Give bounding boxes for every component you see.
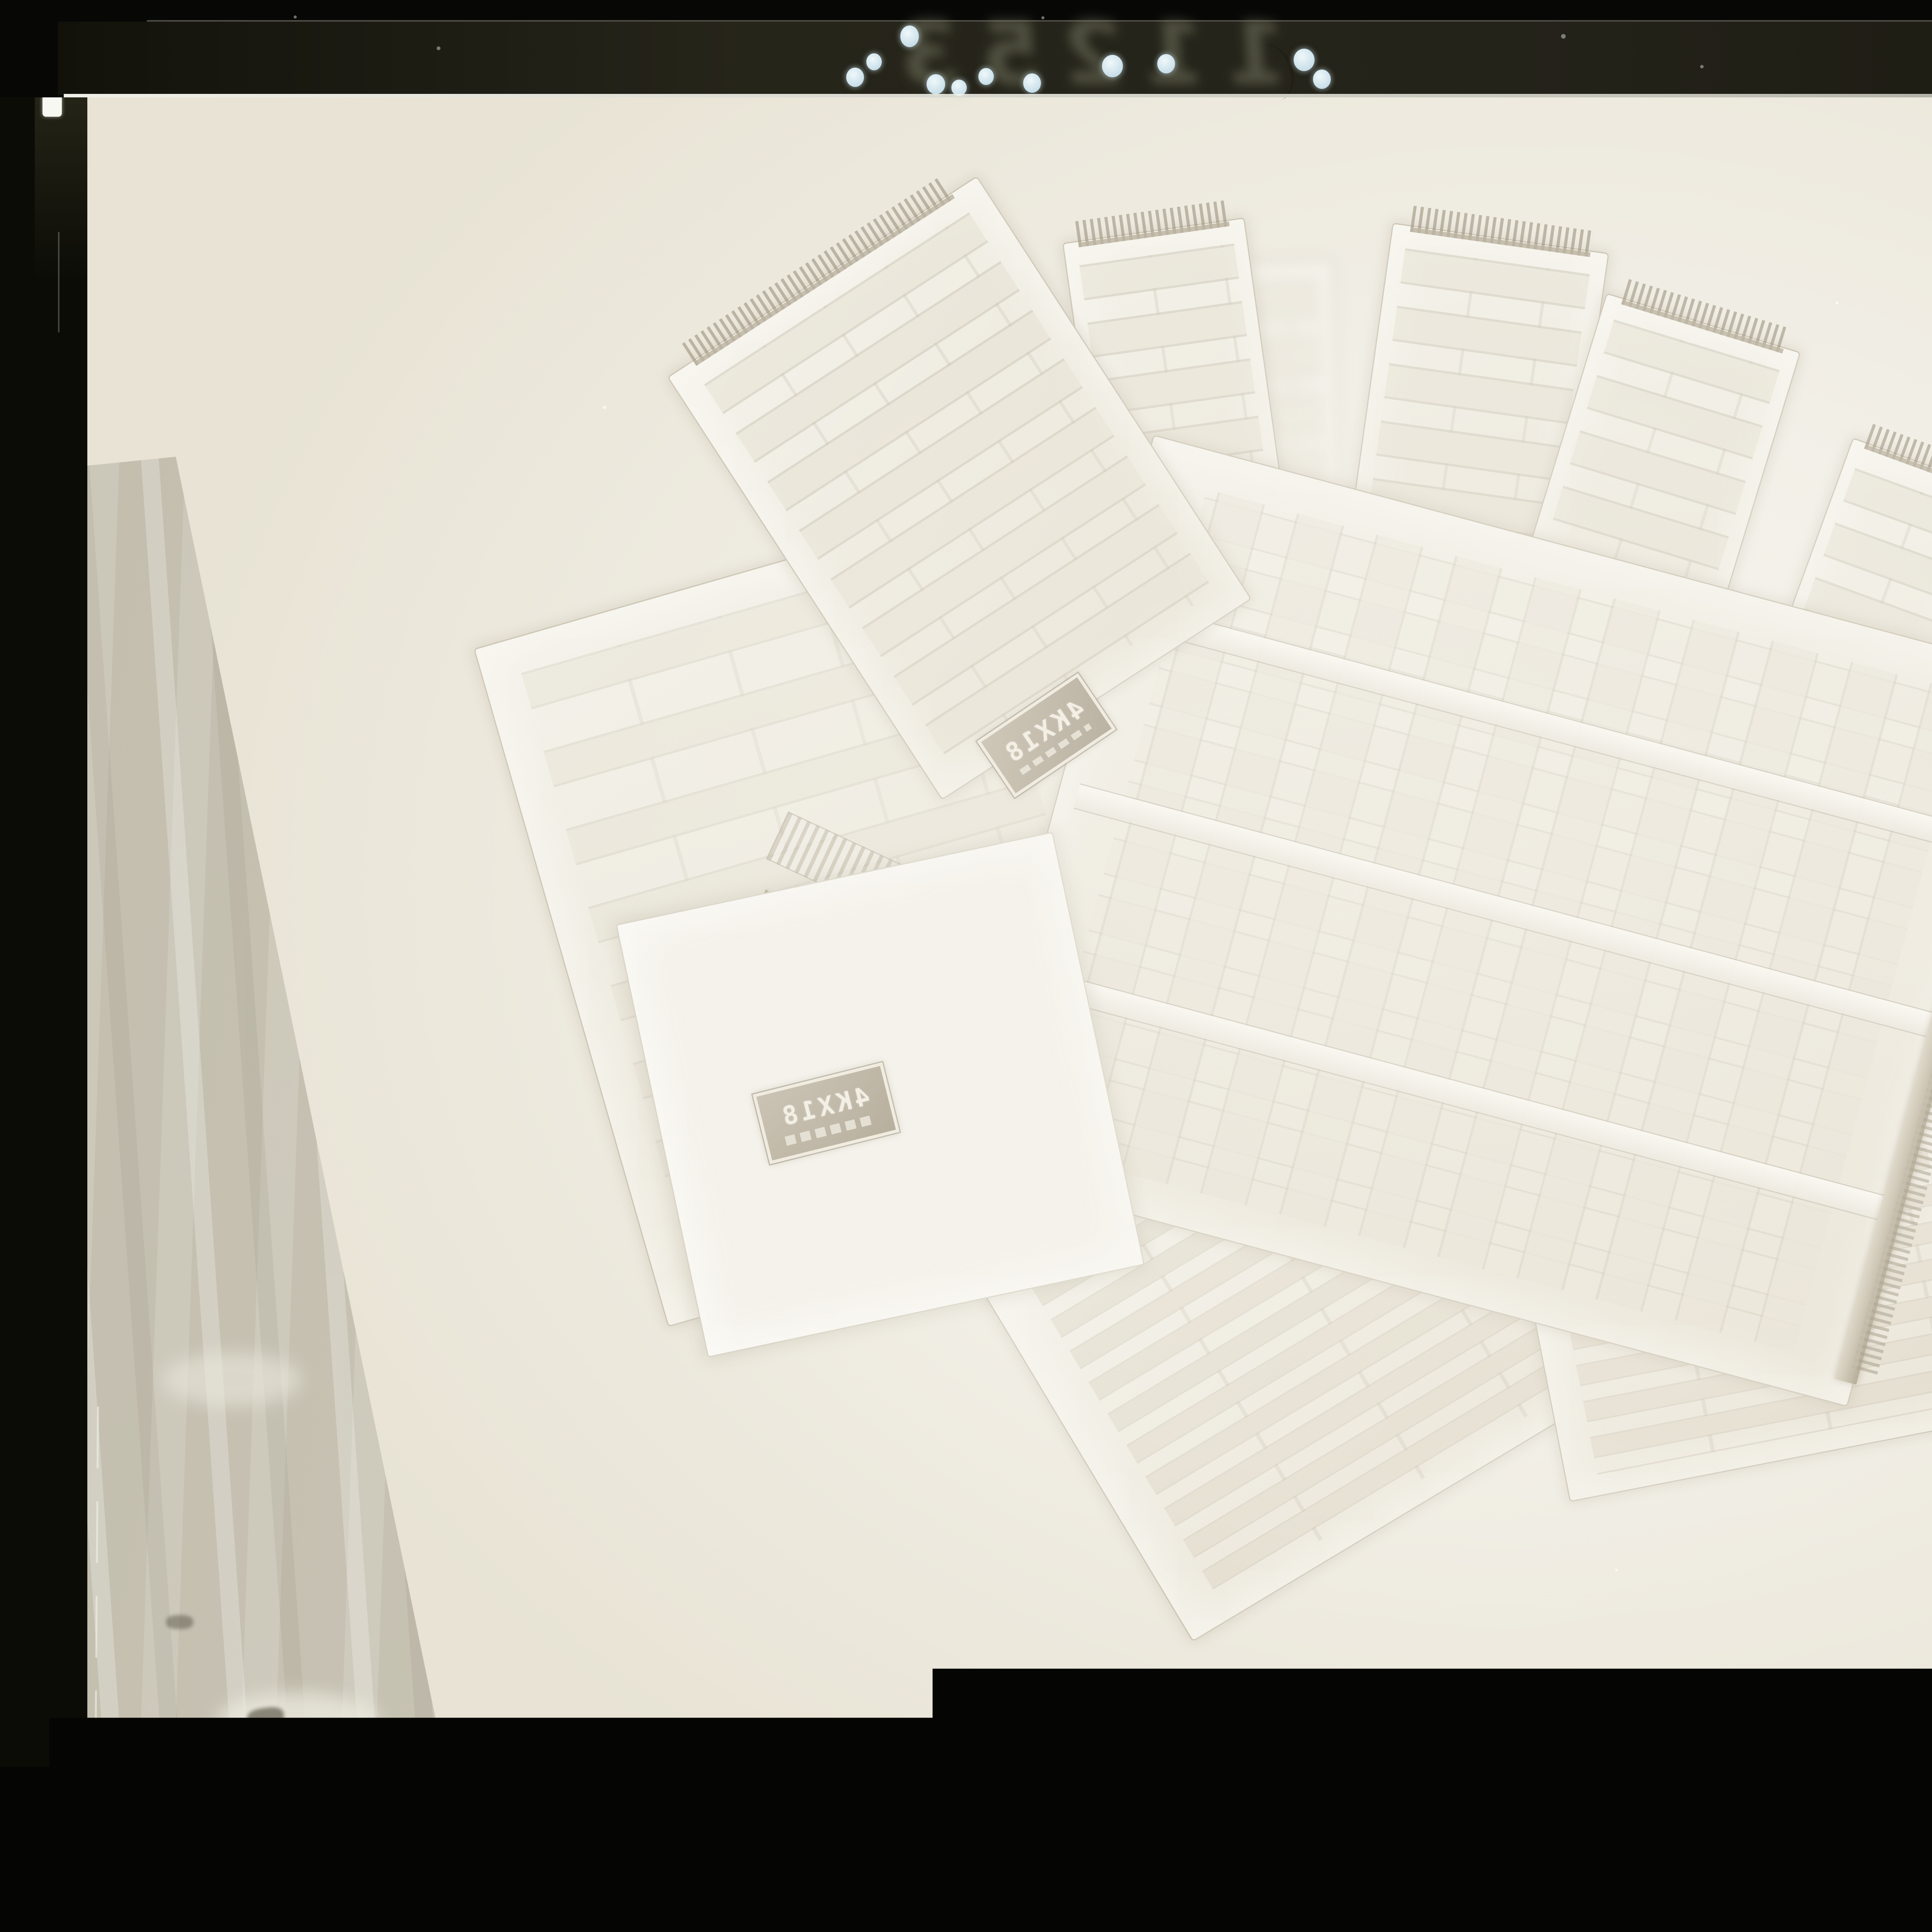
dust-speck [1615,1569,1618,1571]
board-rail [1123,602,1932,853]
dust-speck [603,406,606,409]
board-connector-fingers [1621,279,1790,354]
film-notch-tab [43,94,62,117]
paint-dot [1313,70,1331,89]
paint-dot [1294,49,1315,71]
dust-speck [1561,34,1566,39]
paint-dot [1157,54,1175,73]
paint-dot [927,74,945,94]
film-marking: 11253 [774,3,1390,92]
border-shade [35,97,87,298]
dust-speck [294,15,297,19]
dust-speck [974,1839,977,1842]
paint-dot [866,53,882,70]
film-top-border: 11253 [0,0,1932,97]
paint-dot [978,68,994,85]
paint-dot [1102,55,1123,77]
dust-speck [1835,301,1838,304]
paint-dot [1023,73,1041,93]
film-edge-highlight [64,94,1932,97]
board-connector-fingers [1864,424,1932,496]
board-rail [1074,785,1932,1036]
paint-dot [846,68,864,87]
paint-dot [951,80,967,96]
paint-dot [900,26,919,47]
dust-speck [1700,65,1704,68]
dust-speck [1041,16,1044,19]
film-scratch-line [58,232,60,332]
film-negative-photo: 4KX18 4KX18 [0,0,1932,1932]
film-left-border [0,0,87,1932]
dust-speck [437,46,440,50]
board-connector-fingers [682,176,955,366]
circuit-board-pile: 4KX18 4KX18 [0,0,1932,1932]
board-connector-fingers [1075,200,1230,247]
board-connector-fingers [1410,206,1594,257]
dust-speck [1179,1727,1182,1730]
board-rail [1025,968,1884,1219]
